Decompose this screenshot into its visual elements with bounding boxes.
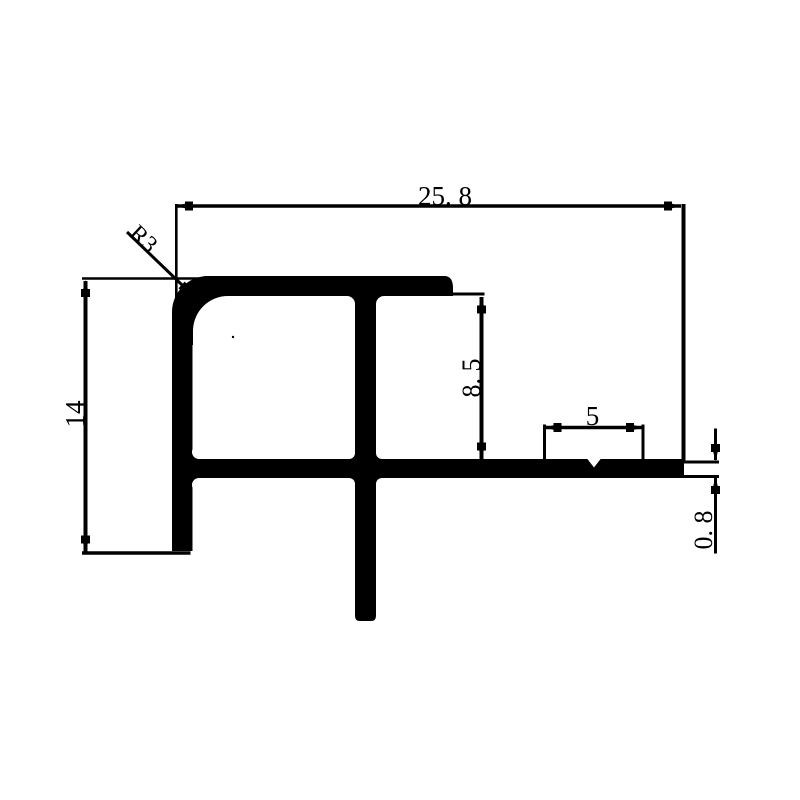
svg-text:0. 8: 0. 8	[689, 511, 718, 550]
svg-text:5: 5	[586, 401, 600, 431]
svg-text:8. 5: 8. 5	[457, 359, 486, 398]
svg-text:14: 14	[60, 400, 90, 428]
svg-text:25. 8: 25. 8	[418, 181, 472, 211]
